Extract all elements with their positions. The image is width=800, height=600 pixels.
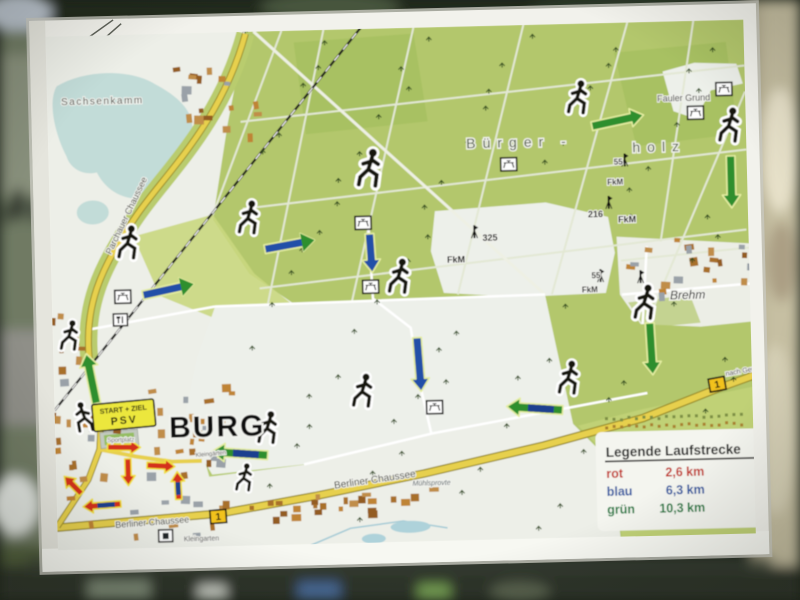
photo-vignette — [0, 0, 800, 600]
scene-svg: SachsenkammBürger -holzFauler GrundBrehm… — [0, 0, 800, 600]
photo-of-trail-map-sign: SachsenkammBürger -holzFauler GrundBrehm… — [0, 0, 800, 600]
